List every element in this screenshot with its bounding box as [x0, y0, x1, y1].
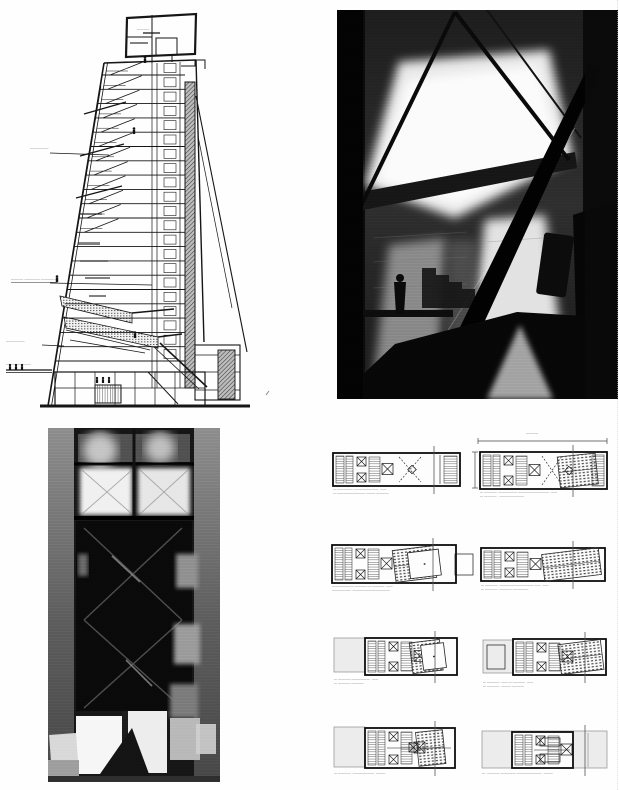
section-annotation-roofbox: ―――― — [137, 28, 149, 32]
building-section-figure: ―――――― ―――― ―――― ――――― ――――·― ―――――― ―――… — [6, 6, 306, 418]
section-annotation-lower: ―――――― — [6, 340, 25, 344]
page-scan-edge — [617, 0, 618, 790]
model-photo-facade — [48, 428, 220, 782]
floor-plans-grid: ―·――――― ―――――――― ―――·――――――――― ――― ―――― … — [326, 430, 618, 786]
section-annotation-upper: ―――――― — [30, 147, 49, 151]
plan-caption-8: ―· ―――― ――――― ―――――――― ――― — [482, 772, 553, 776]
plan-caption-3: ――――――― ――――·― ―――― ―――――――― ·――――――――――… — [332, 585, 393, 593]
building-section-drawing — [6, 6, 306, 418]
plan-caption-5: ― ――――·―――――― ――― ―――― ―――― — [334, 678, 378, 686]
plan-caption-7: ― ――――· ――――――― ――― — [334, 772, 385, 776]
plan-caption-2: ― ――――· ―――――― ―――――――――― ――― ―――― · ―――… — [480, 491, 557, 499]
section-annotation-ground: ―――――――― — [6, 363, 31, 367]
plan-caption-1: ―·――――― ―――――――― ―――·――――――――― ――― ―――― — [333, 488, 389, 496]
section-annotation-mid: ―――― ――――― ――――·― — [11, 278, 57, 282]
floor-plans-drawings — [326, 430, 618, 786]
page: ―――――― ―――― ―――― ――――― ――――·― ―――――― ―――… — [0, 0, 619, 790]
model-photo-facade-art — [48, 428, 220, 782]
model-photo-interior — [337, 10, 618, 399]
plan-dimension-label: ―――― — [526, 432, 538, 436]
model-photo-interior-art — [337, 10, 618, 399]
plan-caption-4: ― ――――· ――――――――――― ―― ――― ―――― ·―――― ――… — [481, 584, 549, 592]
plan-caption-6: ― ―――― ·――·― ―――― ――― ―――― ·――― ―――― — [483, 681, 533, 689]
